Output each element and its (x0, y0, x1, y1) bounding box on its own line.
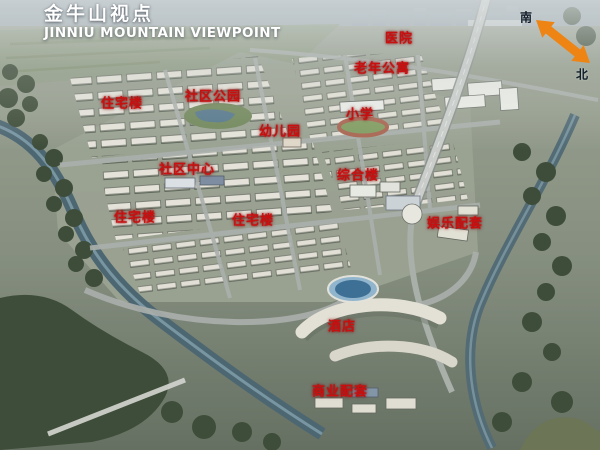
map-label-senior-apartments: 老年公寓 (354, 58, 410, 77)
map-label-hospital: 医院 (385, 28, 413, 47)
map-label-commercial-facilities: 商业配套 (312, 381, 368, 400)
map-label-mixed-use-building: 综合楼 (337, 165, 379, 184)
compass: 南 北 (510, 0, 600, 95)
map-label-residential-3: 住宅楼 (232, 210, 274, 229)
map-label-hotel: 酒店 (328, 316, 356, 335)
compass-south-label: 南 (520, 9, 532, 26)
map-label-residential-1: 住宅楼 (101, 93, 143, 112)
map-label-community-center: 社区中心 (159, 159, 215, 178)
map-label-primary-school: 小学 (346, 104, 374, 123)
title-block: 金牛山视点 JINNIU MOUNTAIN VIEWPOINT (44, 4, 281, 42)
map-label-community-park: 社区公园 (185, 86, 241, 105)
page-title-en: JINNIU MOUNTAIN VIEWPOINT (44, 25, 281, 42)
map-label-residential-2: 住宅楼 (114, 207, 156, 226)
map-label-entertainment-facilities: 娱乐配套 (427, 213, 483, 232)
aerial-viewpoint-rendering: 金牛山视点 JINNIU MOUNTAIN VIEWPOINT 南 北 医院老年… (0, 0, 600, 450)
page-title-zh: 金牛山视点 (44, 4, 281, 25)
compass-north-label: 北 (576, 66, 588, 83)
map-label-kindergarten: 幼儿园 (259, 121, 301, 140)
